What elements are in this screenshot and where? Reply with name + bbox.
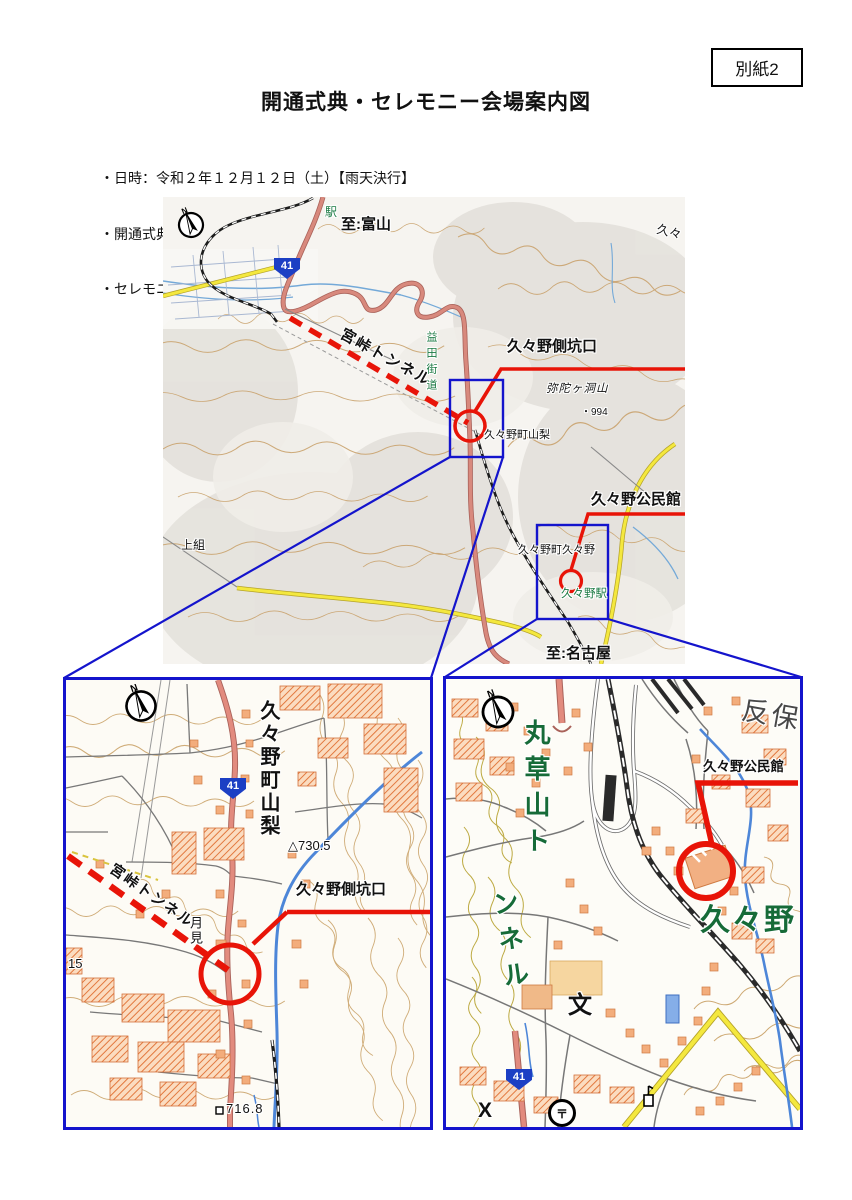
benchmark-symbol <box>216 1107 223 1114</box>
police-symbol: X <box>478 1099 492 1123</box>
marukusa-tunnel-label-1: 丸草山ト <box>518 719 555 863</box>
spot-994-label: ・994 <box>581 403 608 418</box>
kuguno-station-label: 久々野駅 <box>561 585 607 601</box>
page-title: 開通式典・セレモニー会場案内図 <box>0 86 852 116</box>
kuguno-big-label: 久々野 <box>700 895 796 939</box>
tsukimi-label: 月見 <box>186 916 205 946</box>
yamanashi-vertical-label: 久々野町山梨 <box>254 700 283 838</box>
to-toyama-label: 至:富山 <box>341 213 391 234</box>
kamigumi-label: 上組 <box>181 536 205 553</box>
right-detail-map: N 41 丸草山ト ンネル 反保 久々野公民館 久々野 文 〒 X <box>443 676 803 1130</box>
station-label: 駅 <box>325 203 337 220</box>
kuguno-hall-label: 久々野公民館 <box>591 488 681 509</box>
kuguno-portal-label: 久々野側坑口 <box>507 335 597 356</box>
to-nagoya-label: 至:名古屋 <box>546 642 611 663</box>
grid-15-label: 15 <box>68 956 82 971</box>
post-office-symbol: 〒 <box>548 1099 576 1127</box>
left-map-canvas <box>66 680 430 1127</box>
attachment-tag: 別紙2 <box>711 48 803 87</box>
main-overview-map: N 41 駅 至:富山 久々 宮峠トンネル 益田街道 久々野側坑口 弥陀ヶ洞山 … <box>163 197 685 664</box>
kuguno-hall-label: 久々野公民館 <box>703 755 784 775</box>
blue-building <box>666 995 679 1023</box>
masuda-kaido-label: 益田街道 <box>423 331 439 395</box>
attachment-tag-text: 別紙2 <box>735 55 778 80</box>
spot-730-label: △730.5 <box>288 838 331 854</box>
kuguno-portal-label: 久々野側坑口 <box>296 878 386 899</box>
left-detail-map: N 41 久々野町山梨 △730.5 宮峠トンネル 久々野側坑口 月見 15 7… <box>63 677 433 1130</box>
info-line-datetime: ・日時：令和２年１２月１２日（土）【雨天決行】 <box>100 169 620 188</box>
midagahora-label: 弥陀ヶ洞山 <box>546 380 609 396</box>
yamanashi-label: 久々野町山梨 <box>484 426 550 442</box>
school-symbol: 文 <box>568 985 592 1020</box>
kuguno-town-label: 久々野町久々野 <box>518 541 595 557</box>
benchmark-value: 716.8 <box>226 1101 264 1116</box>
benchmark-label: 716.8 <box>226 1101 264 1116</box>
document-page: 別紙2 開通式典・セレモニー会場案内図 ・日時：令和２年１２月１２日（土）【雨天… <box>0 0 852 1200</box>
